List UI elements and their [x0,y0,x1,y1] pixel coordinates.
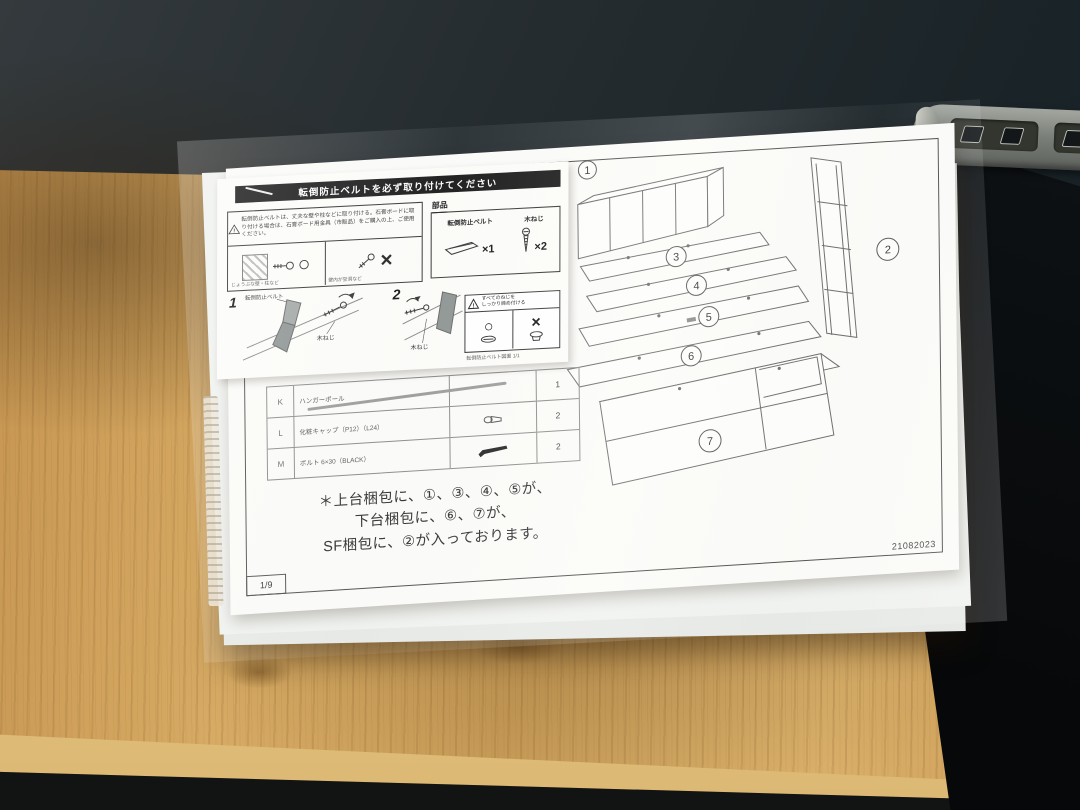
page-number-box: 1/9 [246,574,286,597]
step-2-illustration: 木ねじ [403,281,465,366]
overlay-header-bar: 転倒防止ベルトを必ず取り付けてください [235,170,560,204]
screw-angled-icon [354,250,376,273]
protruding-screw-icon [528,331,544,342]
callout-6: 6 [688,351,694,363]
callout-1: 1 [584,165,590,177]
wood-screw-label: 木ねじ [524,213,543,224]
warning-text: 転倒防止ベルトは、丈夫な壁や柱などに取り付ける。石膏ボードに取り付ける場合は、石… [240,206,421,242]
svg-text:!: ! [472,303,474,309]
part-qty: 1 [537,368,579,401]
callout-5: 5 [706,311,712,323]
solid-wall-icon [242,253,268,280]
belt-qty: ×1 [482,243,495,256]
overlay-header-text: 転倒防止ベルトを必ず取り付けてください [298,174,497,198]
small-parts-table: K ハンガーポール 1 L 化粧キャップ（P12）（L24） 2 M ボル [266,367,580,481]
ok-mark: ○ [298,254,311,276]
part-qty: 2 [537,399,579,432]
tighten-screws-box: ! すべてのねじを しっかり締め付ける ○ [464,290,560,353]
tighten-ok-mark: ○ [484,319,494,336]
ng-mark: × [380,249,392,271]
bolt-icon [450,433,537,469]
tighten-note-line: しっかり締め付ける [481,301,525,309]
belt-parts-box: 部品 転倒防止ベルト 木ねじ ×1 [431,206,561,279]
callout-7: 7 [707,436,713,448]
plug-slot-icon [1062,130,1080,148]
exploded-furniture-diagram: 1 2 3 4 5 6 7 [557,134,946,495]
part-code: K [267,386,294,418]
document-code: 21082023 [892,539,936,552]
svg-text:!: ! [233,228,235,234]
warning-triangle-icon: ! [467,298,479,310]
step1-screw-label: 木ねじ [317,333,335,342]
ng-caption: 壁内が空洞など [328,275,362,284]
step-1-number: 1 [229,294,237,310]
overlay-footer-note: 転倒防止ベルト図面 1/1 [466,352,519,362]
cap-icon [450,402,537,438]
screw-horizontal-icon [272,260,294,271]
wood-screw-icon [519,227,532,254]
callout-3: 3 [673,251,679,263]
step-1-illustration: 転倒防止ベルト 木ねじ [243,285,387,372]
wall-warning-box: ! 転倒防止ベルトは、丈夫な壁や柱などに取り付ける。石膏ボードに取り付ける場合は… [227,202,423,292]
belt-icon [444,238,480,258]
step2-screw-label: 木ねじ [411,343,429,352]
part-qty: 2 [537,430,579,463]
step-2-number: 2 [393,286,401,302]
ok-caption: じょうぶな壁・柱など [231,279,279,288]
step1-belt-label: 転倒防止ベルト [245,292,283,302]
plug-slot-icon [1000,127,1025,145]
photo-scene: 1/9 21082023 [0,0,1080,810]
flush-screw-icon [481,335,497,343]
belt-instruction-overlay-sheet: 転倒防止ベルトを必ず取り付けてください ! 転倒防止ベルトは、丈夫な壁や柱などに… [217,161,569,379]
power-socket-icon [1053,122,1080,155]
page-number: 1/9 [260,580,273,591]
tighten-ng-mark: × [531,315,540,332]
callout-2: 2 [885,244,891,256]
instruction-paper-stack: 1/9 21082023 [185,106,1002,653]
part-code: M [268,448,295,480]
leader-line [245,187,272,195]
warning-triangle-icon: ! [228,217,240,242]
callout-4: 4 [693,280,699,292]
screw-qty: ×2 [534,241,547,254]
belt-label: 転倒防止ベルト [447,215,492,227]
part-code: L [267,417,294,449]
parts-box-title: 部品 [432,199,448,213]
top-cabinet-side-face [707,167,724,226]
assembly-instruction-sheet: 1/9 21082023 [226,123,959,615]
